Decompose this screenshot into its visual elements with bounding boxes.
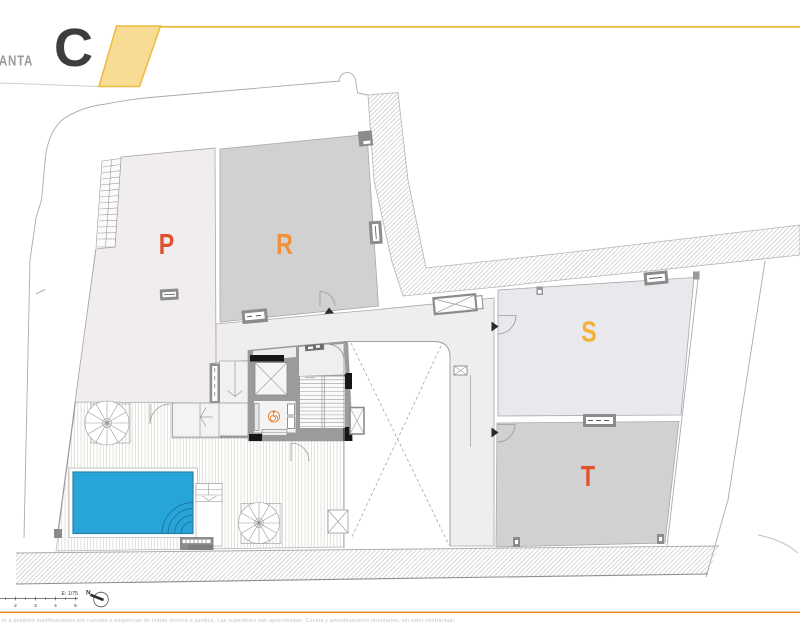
svg-text:PLANTA: PLANTA (0, 52, 33, 69)
svg-text:C: C (54, 18, 93, 78)
svg-text:S: S (581, 315, 596, 348)
svg-text:3: 3 (34, 603, 37, 609)
svg-text:2: 2 (14, 603, 17, 609)
svg-text:T: T (581, 459, 595, 492)
svg-text:5: 5 (74, 603, 77, 609)
svg-text:to a posibles modificaciones p: to a posibles modificaciones por razones… (2, 618, 456, 624)
svg-text:4: 4 (54, 603, 57, 609)
svg-text:P: P (159, 227, 174, 260)
svg-text:R: R (276, 227, 293, 260)
svg-text:E: 1/75: E: 1/75 (62, 591, 79, 597)
